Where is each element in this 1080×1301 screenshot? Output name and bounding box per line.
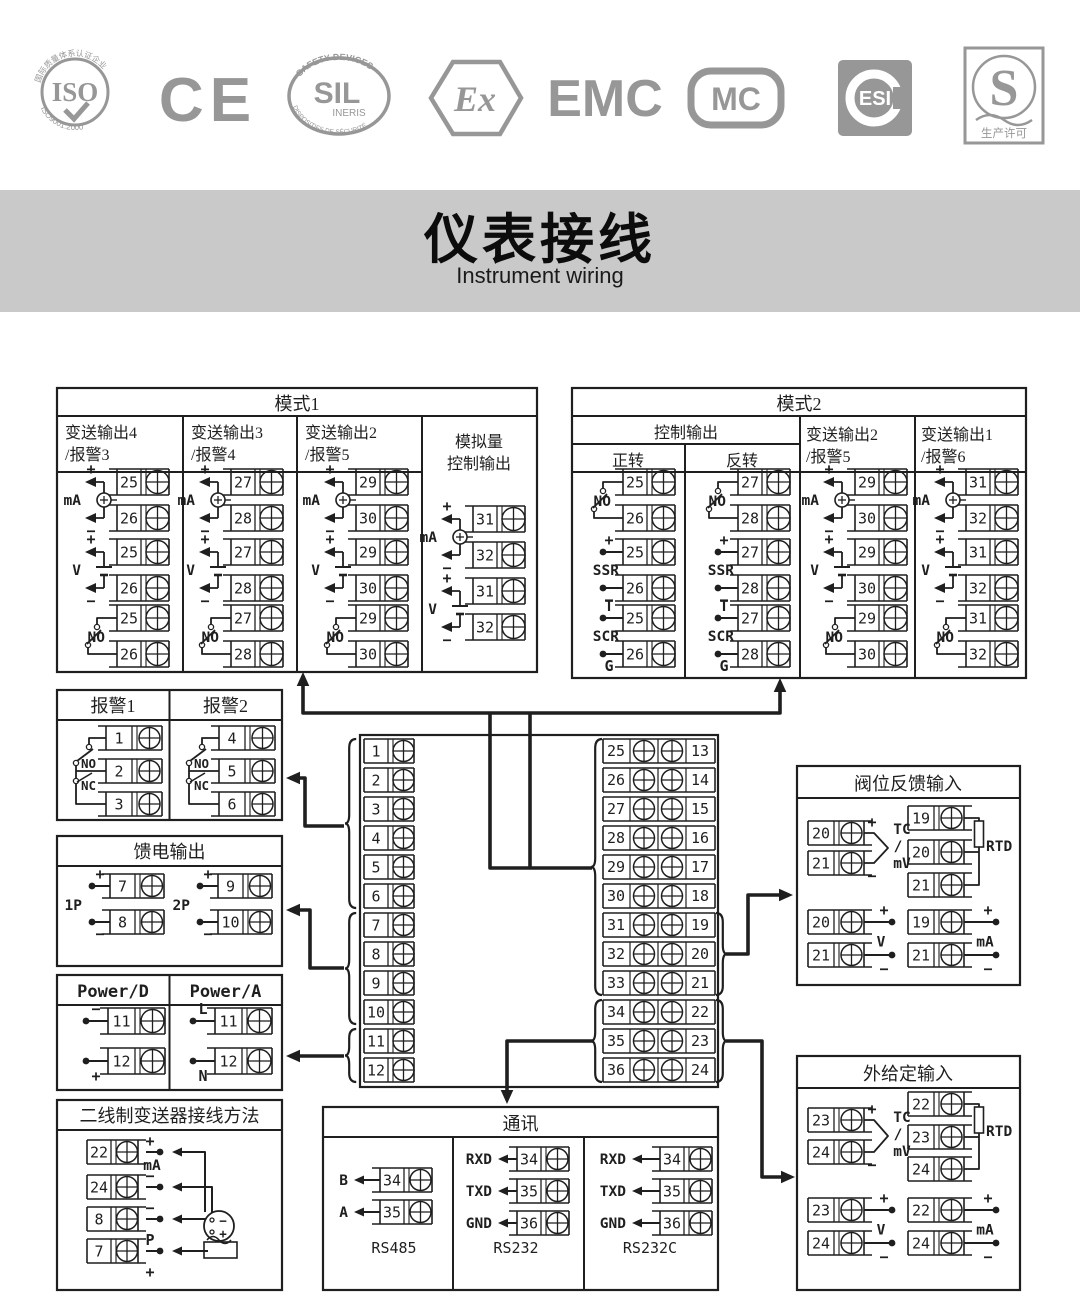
label: 26	[120, 646, 138, 664]
terminal-block-21: 21	[808, 851, 872, 875]
label: 26	[626, 646, 644, 664]
terminal-block-24: 24	[908, 1231, 972, 1255]
label: −	[824, 592, 833, 610]
label: +	[983, 1189, 992, 1207]
label: +	[325, 530, 334, 548]
label: 30	[607, 887, 625, 905]
label: 16	[691, 829, 709, 847]
wire	[202, 738, 219, 744]
label: 25	[626, 544, 644, 562]
label: 19	[912, 810, 930, 828]
label: 12	[112, 1053, 130, 1071]
wire	[202, 648, 231, 654]
label: 5	[371, 859, 380, 877]
label: 20	[691, 945, 709, 963]
label: 5	[227, 763, 236, 781]
label: 32	[969, 646, 987, 664]
label: 2	[371, 772, 380, 790]
label: 19	[691, 916, 709, 934]
terminal-block-25: 25	[109, 605, 169, 631]
junction-dot	[715, 549, 722, 556]
terminal-block-36: 36	[509, 1211, 569, 1235]
rtd-resistor-icon	[975, 821, 984, 847]
terminal-block-32: 32	[958, 641, 1018, 667]
terminal-block-26: 26	[615, 505, 675, 531]
label: 25	[120, 544, 138, 562]
label: mA	[976, 935, 994, 951]
contact-circle	[210, 1230, 214, 1234]
terminal-block-12: 12	[364, 1058, 414, 1082]
label: 6	[371, 888, 380, 906]
terminal-block-3: 3	[364, 797, 414, 821]
label: 32	[476, 619, 494, 637]
contact-circle	[86, 744, 91, 749]
terminal-block-30: 30	[847, 641, 907, 667]
contact-circle	[210, 1218, 214, 1222]
label: 28	[741, 510, 759, 528]
label: 8	[94, 1211, 103, 1229]
label: −	[867, 867, 876, 885]
wire	[826, 648, 855, 654]
arrowhead-icon	[934, 547, 945, 557]
label: 1P	[65, 898, 83, 914]
label: 14	[691, 771, 709, 789]
label: 报警1	[91, 696, 136, 716]
label: 24	[691, 1061, 709, 1079]
label: V	[186, 563, 195, 579]
terminal-block-24: 24	[908, 1157, 972, 1181]
wire	[88, 648, 117, 654]
junction-dot	[993, 1207, 1000, 1214]
label: 29	[359, 544, 377, 562]
label: V	[311, 563, 320, 579]
label: 10	[221, 914, 239, 932]
label: 控制输出	[654, 424, 718, 442]
label: TXD	[600, 1184, 626, 1200]
terminal-block-25: 25	[615, 605, 675, 631]
label: +	[935, 460, 944, 478]
junction-dot	[889, 1207, 896, 1214]
junction-dot	[157, 1248, 164, 1255]
terminal-block-12: 12	[207, 1048, 272, 1074]
brace	[345, 1029, 356, 1082]
label: 馈电输出	[134, 842, 206, 862]
label: 9	[226, 878, 235, 896]
junction-dot	[197, 919, 204, 926]
label: 33	[607, 974, 625, 992]
terminal-block-20: 20	[808, 821, 872, 845]
terminal-block-2: 2	[364, 768, 414, 792]
label: 变送输出1	[921, 426, 993, 444]
arrowhead-icon	[632, 1155, 642, 1164]
terminal-block-11: 11	[100, 1008, 165, 1034]
label: SCR	[708, 629, 734, 645]
label: 模拟量	[455, 433, 503, 451]
label: TXD	[466, 1184, 492, 1200]
label: 23	[912, 1129, 930, 1147]
label: +	[91, 1067, 100, 1085]
label: 变送输出2	[806, 426, 878, 444]
label: 27	[741, 474, 759, 492]
wire	[507, 1041, 594, 1098]
label: V	[877, 1223, 886, 1239]
label: +	[442, 497, 451, 515]
wire	[726, 895, 789, 954]
instrument-wiring-page: 国际质量体系认证企业 ISO ISO9001:2000 CE SAFETY DE…	[0, 0, 1080, 1301]
terminal-block-1: 1	[364, 739, 414, 763]
label: NC	[81, 778, 96, 793]
label: 34	[383, 1172, 401, 1190]
label: 19	[912, 914, 930, 932]
terminal-block-24: 24	[87, 1175, 146, 1199]
label: 31	[969, 610, 987, 628]
label: /	[894, 1127, 903, 1143]
label: +	[203, 865, 212, 883]
terminal-block-9: 9	[210, 874, 272, 898]
label: NO	[202, 630, 220, 646]
terminal-block-4: 4	[364, 826, 414, 850]
label: 8	[371, 946, 380, 964]
terminal-block-29: 29	[348, 605, 408, 631]
label: RTD	[986, 1124, 1012, 1140]
label: 7	[118, 878, 127, 896]
wiring-diagram: 模式1变送输出4/报警3变送输出3/报警4变送输出2/报警5模拟量控制输出252…	[0, 0, 1080, 1301]
terminal-block-28: 28	[730, 505, 790, 531]
label: 25	[626, 610, 644, 628]
junction-dot	[600, 549, 607, 556]
label: +	[200, 530, 209, 548]
label: GND	[466, 1216, 492, 1232]
label: 35	[383, 1204, 401, 1222]
terminal-block-25: 25	[615, 539, 675, 565]
label: 32	[969, 580, 987, 598]
label: RS232	[493, 1239, 538, 1257]
terminal-block-32: 32	[465, 614, 525, 640]
terminal-block-31: 31	[465, 506, 525, 532]
label: 25	[607, 742, 625, 760]
wire	[864, 833, 888, 863]
label: 10	[367, 1004, 385, 1022]
label: NO	[194, 756, 209, 771]
arrowhead-icon	[297, 672, 310, 686]
terminal-block-27: 27	[223, 539, 283, 565]
terminal-block-24: 24	[808, 1140, 872, 1164]
wire	[97, 618, 117, 624]
arrowhead-icon	[498, 1155, 508, 1164]
label: 29	[359, 610, 377, 628]
label: 20	[812, 914, 830, 932]
label: 36	[607, 1061, 625, 1079]
label: 32	[476, 547, 494, 565]
label: 控制输出	[447, 455, 511, 473]
label: 2P	[173, 898, 191, 914]
wire	[964, 1133, 979, 1169]
terminal-block-31: 31	[958, 605, 1018, 631]
label: 31	[476, 511, 494, 529]
label: 11	[367, 1033, 385, 1051]
contact-circle	[186, 760, 191, 765]
arrowhead-icon	[354, 1208, 364, 1217]
label: 32	[607, 945, 625, 963]
strip-row-33-21: 3321	[603, 971, 715, 995]
contact-circle	[943, 624, 948, 629]
terminal-block-20: 20	[908, 840, 972, 864]
label: 28	[607, 829, 625, 847]
label: +	[442, 569, 451, 587]
label: 30	[359, 646, 377, 664]
label: 25	[120, 610, 138, 628]
label: 35	[520, 1183, 538, 1201]
terminal-block-29: 29	[847, 605, 907, 631]
label: 变送输出3	[191, 424, 263, 442]
label: B	[339, 1173, 348, 1189]
label: 25	[120, 474, 138, 492]
terminal-block-9: 9	[364, 971, 414, 995]
label: +	[867, 1100, 876, 1118]
label: T	[719, 597, 728, 615]
label: 23	[812, 1112, 830, 1130]
junction-dot	[889, 952, 896, 959]
label: 20	[812, 825, 830, 843]
label: −	[145, 1199, 154, 1217]
transmitter-base	[204, 1242, 237, 1258]
label: −	[200, 592, 209, 610]
label: A	[339, 1205, 348, 1221]
label: 23	[812, 1202, 830, 1220]
terminal-block-27: 27	[730, 539, 790, 565]
terminal-block-1: 1	[98, 726, 162, 750]
strip-row-25-13: 2513	[603, 739, 715, 763]
label: 27	[607, 800, 625, 818]
arrowhead-icon	[85, 477, 96, 487]
strip-row-27-15: 2715	[603, 797, 715, 821]
wire	[180, 1152, 205, 1212]
terminal-block-25: 25	[109, 539, 169, 565]
terminal-block-26: 26	[615, 575, 675, 601]
label: 29	[607, 858, 625, 876]
terminal-block-36: 36	[652, 1211, 712, 1235]
wire	[336, 618, 356, 624]
strip-row-34-22: 3422	[603, 1000, 715, 1024]
label: +	[145, 1263, 154, 1281]
label: 31	[969, 544, 987, 562]
label: 20	[912, 844, 930, 862]
label: 34	[663, 1151, 681, 1169]
label: RXD	[600, 1152, 626, 1168]
label: 30	[858, 580, 876, 598]
wire	[937, 648, 966, 654]
terminal-block-35: 35	[652, 1179, 712, 1203]
label: 阀位反馈输入	[854, 774, 962, 794]
junction-dot	[157, 1149, 164, 1156]
label: 24	[812, 1144, 830, 1162]
label: +	[604, 531, 613, 549]
label: 24	[912, 1161, 930, 1179]
label: 二线制变送器接线方法	[80, 1106, 260, 1126]
label: 30	[858, 510, 876, 528]
junction-dot	[197, 883, 204, 890]
terminal-block-6: 6	[364, 884, 414, 908]
wire	[89, 738, 106, 744]
terminal-block-8: 8	[87, 1207, 146, 1231]
terminal-block-28: 28	[730, 575, 790, 601]
terminal-block-23: 23	[808, 1198, 872, 1222]
label: −	[86, 592, 95, 610]
label: 8	[118, 914, 127, 932]
wire	[290, 778, 344, 826]
label: 外给定输入	[863, 1064, 953, 1084]
label: 36	[520, 1215, 538, 1233]
rtd-resistor-icon	[975, 1107, 984, 1133]
terminal-block-28: 28	[223, 505, 283, 531]
label: mA	[976, 1223, 994, 1239]
label: +	[824, 530, 833, 548]
terminal-block-34: 34	[372, 1168, 432, 1192]
label: +	[983, 901, 992, 919]
wire	[290, 910, 344, 968]
label: 报警2	[203, 696, 248, 716]
label: 30	[359, 580, 377, 598]
terminal-block-22: 22	[908, 1092, 972, 1116]
label: +	[95, 865, 104, 883]
terminal-block-27: 27	[730, 605, 790, 631]
wire	[603, 482, 623, 488]
terminal-block-32: 32	[958, 575, 1018, 601]
terminal-block-29: 29	[847, 539, 907, 565]
terminal-block-8: 8	[364, 942, 414, 966]
arrowhead-icon	[286, 904, 300, 917]
label: 22	[912, 1202, 930, 1220]
arrowhead-icon	[632, 1187, 642, 1196]
label: 正转	[612, 452, 644, 470]
terminal-block-32: 32	[465, 542, 525, 568]
junction-dot	[889, 1240, 896, 1247]
arrowhead-icon	[441, 586, 452, 596]
wire	[864, 1120, 888, 1152]
label: 28	[234, 580, 252, 598]
arrowhead-icon	[199, 547, 210, 557]
label: 13	[691, 742, 709, 760]
terminal-block-8: 8	[102, 910, 164, 934]
label: 15	[691, 800, 709, 818]
label: GND	[600, 1216, 626, 1232]
contact-circle	[333, 624, 338, 629]
label: 1	[371, 743, 380, 761]
terminal-block-7: 7	[102, 874, 164, 898]
label: mA	[178, 493, 196, 509]
label: 23	[691, 1032, 709, 1050]
label: 24	[812, 1235, 830, 1253]
terminal-block-26: 26	[109, 505, 169, 531]
terminal-block-7: 7	[364, 913, 414, 937]
label: mA	[420, 530, 438, 546]
label: 34	[520, 1151, 538, 1169]
label: NO	[937, 630, 955, 646]
label: 22	[691, 1003, 709, 1021]
label: −	[983, 1248, 992, 1266]
label: −	[983, 960, 992, 978]
label: V	[921, 563, 930, 579]
label: 29	[858, 474, 876, 492]
terminal-block-20: 20	[808, 910, 872, 934]
arrowhead-icon	[324, 477, 335, 487]
terminal-block-24: 24	[808, 1231, 872, 1255]
terminal-block-34: 34	[509, 1147, 569, 1171]
label: −	[325, 592, 334, 610]
terminal-block-26: 26	[109, 575, 169, 601]
strip-row-30-18: 3018	[603, 884, 715, 908]
terminal-block-21: 21	[908, 943, 972, 967]
label: SSR	[593, 563, 619, 579]
label: G	[719, 657, 728, 675]
contact-circle	[715, 488, 720, 493]
terminal-block-29: 29	[348, 539, 408, 565]
label: +	[935, 530, 944, 548]
junction-dot	[600, 615, 607, 622]
label: V	[877, 935, 886, 951]
arrowhead-icon	[324, 547, 335, 557]
label: 12	[219, 1053, 237, 1071]
junction-dot	[715, 615, 722, 622]
junction-dot	[157, 1216, 164, 1223]
label: 29	[359, 474, 377, 492]
terminal-block-11: 11	[364, 1029, 414, 1053]
label: mA	[143, 1158, 161, 1174]
terminal-block-6: 6	[211, 792, 275, 816]
label: NC	[194, 778, 209, 793]
label: 22	[90, 1144, 108, 1162]
terminal-block-31: 31	[958, 539, 1018, 565]
junction-dot	[993, 1240, 1000, 1247]
wire	[726, 1041, 791, 1177]
label: 模式2	[777, 394, 822, 414]
label: mA	[303, 493, 321, 509]
arrowhead-icon	[354, 1176, 364, 1185]
terminal-block-2: 2	[98, 759, 162, 783]
arrowhead-icon	[934, 477, 945, 487]
brace	[345, 913, 356, 1024]
label: 31	[476, 583, 494, 601]
label: 通讯	[503, 1114, 539, 1134]
contact-circle	[73, 760, 78, 765]
label: −	[91, 1000, 100, 1018]
terminal-block-30: 30	[348, 575, 408, 601]
wire	[835, 618, 855, 624]
label: −	[95, 925, 104, 943]
label: NO	[594, 494, 612, 510]
label: mA	[913, 493, 931, 509]
label: 29	[858, 610, 876, 628]
label: −	[879, 960, 888, 978]
arrowhead-icon	[85, 547, 96, 557]
label: 11	[112, 1013, 130, 1031]
label: 30	[359, 510, 377, 528]
terminal-block-28: 28	[223, 641, 283, 667]
terminal-block-30: 30	[348, 641, 408, 667]
arrowhead-icon	[774, 678, 787, 692]
terminal-block-30: 30	[847, 575, 907, 601]
label: 21	[691, 974, 709, 992]
arrowhead-icon	[823, 547, 834, 557]
label: 27	[234, 474, 252, 492]
strip-row-32-20: 3220	[603, 942, 715, 966]
label: /	[894, 839, 903, 855]
label: 6	[227, 796, 236, 814]
arrowhead-icon	[781, 1171, 795, 1184]
label: NO	[709, 494, 727, 510]
label: 35	[663, 1183, 681, 1201]
label: V	[428, 602, 437, 618]
